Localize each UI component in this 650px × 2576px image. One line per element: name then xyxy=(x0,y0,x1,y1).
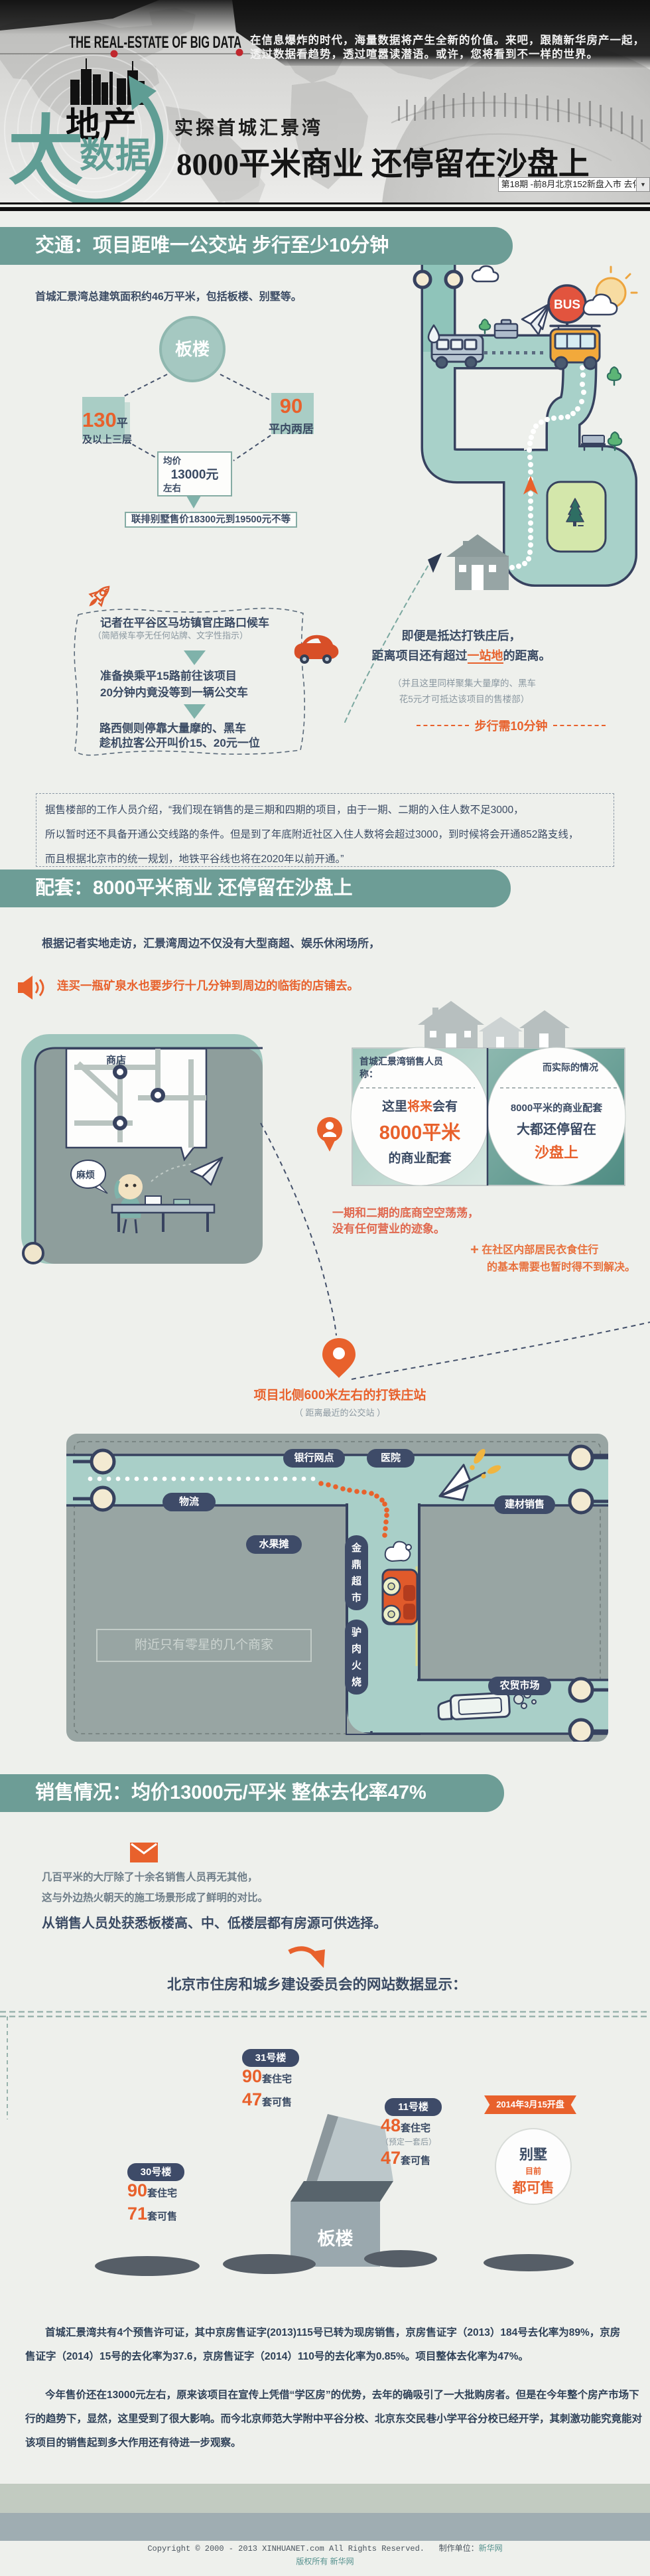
svg-text:BUS: BUS xyxy=(554,298,580,312)
